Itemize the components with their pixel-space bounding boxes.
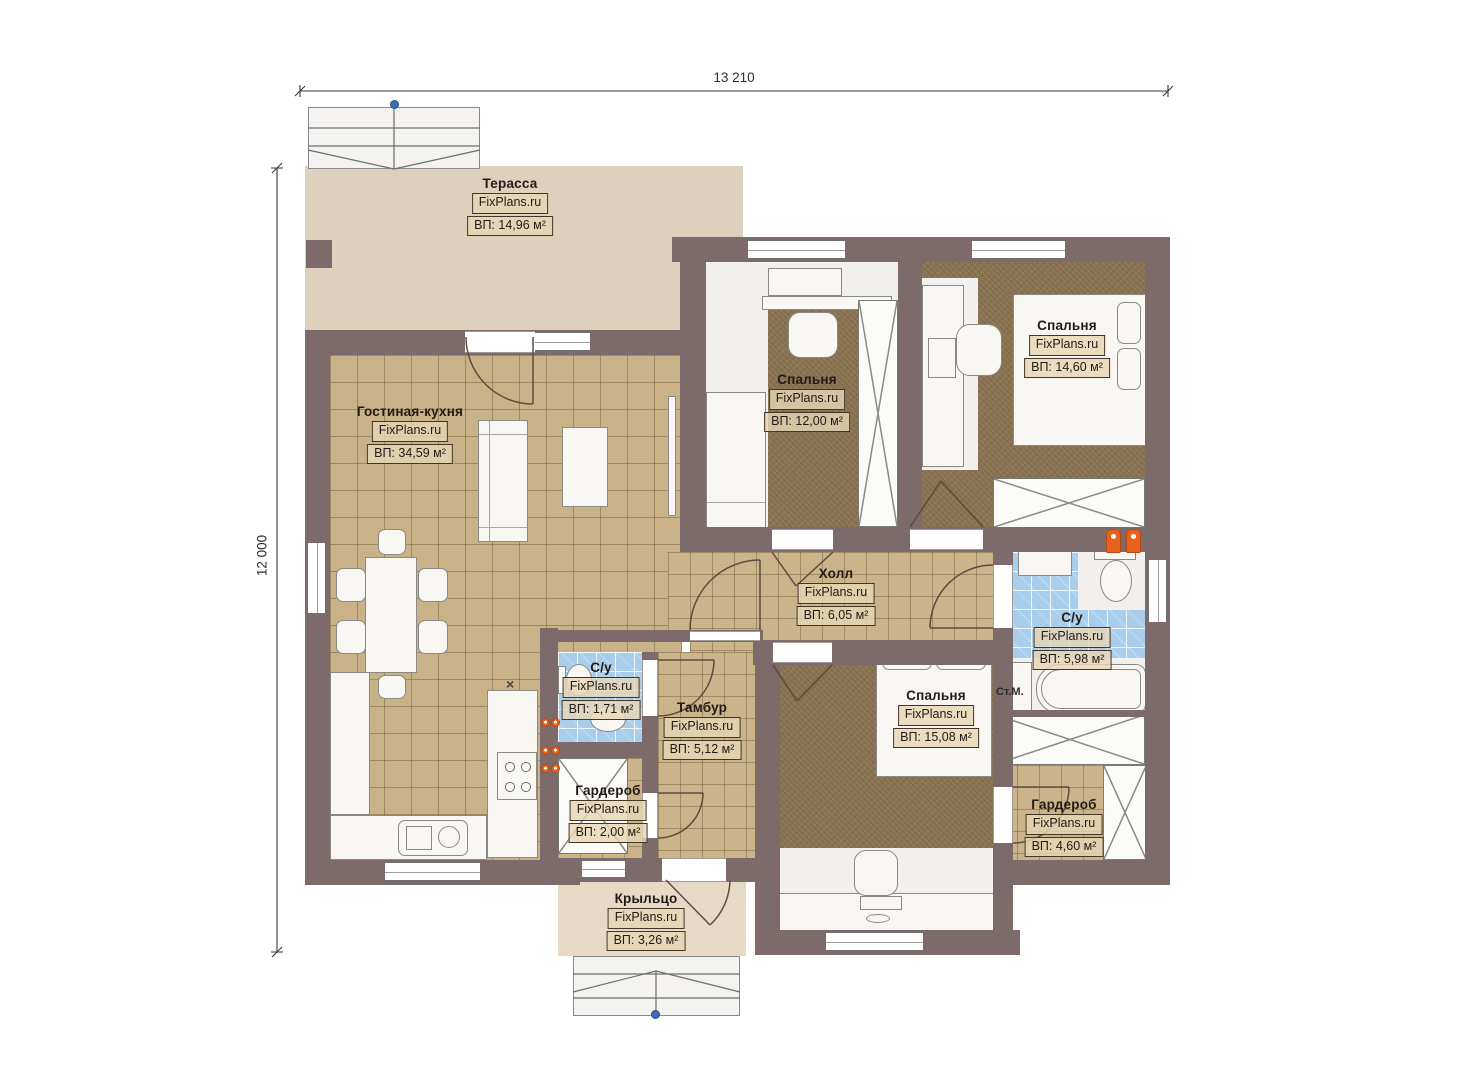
room-area: ВП: 5,12 м²	[663, 740, 742, 761]
room-label-bedroom3: Спальня FixPlans.ru ВП: 15,08 м²	[893, 688, 979, 748]
room-name: Спальня	[906, 688, 966, 703]
room-label-terrace: Терасса FixPlans.ru ВП: 14,96 м²	[467, 176, 553, 236]
room-label-wardrobe1: Гардероб FixPlans.ru ВП: 2,00 м²	[569, 783, 648, 843]
room-label-wardrobe2: Гардероб FixPlans.ru ВП: 4,60 м²	[1025, 797, 1104, 857]
room-area: ВП: 1,71 м²	[562, 700, 641, 721]
floor-plan-page: { "plan": { "brand": "FixPlans.ru", "dim…	[0, 0, 1474, 1080]
outlet-icon	[551, 746, 560, 755]
brand-watermark: FixPlans.ru	[798, 583, 875, 604]
vent-mark: ×	[506, 676, 514, 692]
room-name: Холл	[819, 566, 854, 581]
room-name: Гостиная-кухня	[357, 404, 463, 419]
brand-watermark: FixPlans.ru	[769, 389, 846, 410]
room-label-living: Гостиная-кухня FixPlans.ru ВП: 34,59 м²	[357, 404, 463, 464]
room-area: ВП: 4,60 м²	[1025, 837, 1104, 858]
brand-watermark: FixPlans.ru	[664, 717, 741, 738]
brand-watermark: FixPlans.ru	[1026, 814, 1103, 835]
room-name: Гардероб	[1031, 797, 1096, 812]
brand-watermark: FixPlans.ru	[1034, 627, 1111, 648]
room-name: С/у	[1061, 610, 1083, 625]
outlet-icon	[551, 718, 560, 727]
floor-plan-canvas: 13 210 12 000 Ст.М. × Терасса FixPlans.r…	[0, 0, 1474, 1080]
outlet-icon	[551, 764, 560, 773]
brand-watermark: FixPlans.ru	[472, 193, 549, 214]
room-label-bedroom2: Спальня FixPlans.ru ВП: 14,60 м²	[1024, 318, 1110, 378]
room-label-bathroom: С/у FixPlans.ru ВП: 5,98 м²	[1033, 610, 1112, 670]
room-area: ВП: 6,05 м²	[797, 606, 876, 627]
room-name: Терасса	[483, 176, 538, 191]
room-label-tambour: Тамбур FixPlans.ru ВП: 5,12 м²	[663, 700, 742, 760]
wall-lamp-icon	[1106, 529, 1121, 553]
room-name: Крыльцо	[615, 891, 678, 906]
room-name: Гардероб	[575, 783, 640, 798]
room-area: ВП: 3,26 м²	[607, 931, 686, 952]
brand-watermark: FixPlans.ru	[608, 908, 685, 929]
brand-watermark: FixPlans.ru	[1029, 335, 1106, 356]
room-label-bedroom1: Спальня FixPlans.ru ВП: 12,00 м²	[764, 372, 850, 432]
room-name: С/у	[590, 660, 612, 675]
wall-lamp-icon	[1126, 529, 1141, 553]
stairs-start-marker	[651, 1010, 660, 1019]
outlet-icon	[541, 764, 550, 773]
room-area: ВП: 14,60 м²	[1024, 358, 1110, 379]
dimension-width-label: 13 210	[694, 70, 774, 85]
plan-linework	[0, 0, 1474, 1080]
dimension-height-label: 12 000	[255, 526, 270, 586]
washing-machine-label: Ст.М.	[996, 686, 1024, 698]
brand-watermark: FixPlans.ru	[570, 800, 647, 821]
room-name: Спальня	[777, 372, 837, 387]
room-label-hall: Холл FixPlans.ru ВП: 6,05 м²	[797, 566, 876, 626]
room-area: ВП: 14,96 м²	[467, 216, 553, 237]
room-area: ВП: 34,59 м²	[367, 444, 453, 465]
stair-symbols	[308, 107, 740, 1015]
room-area: ВП: 15,08 м²	[893, 728, 979, 749]
room-label-porch: Крыльцо FixPlans.ru ВП: 3,26 м²	[607, 891, 686, 951]
room-area: ВП: 2,00 м²	[569, 823, 648, 844]
brand-watermark: FixPlans.ru	[563, 677, 640, 698]
room-area: ВП: 12,00 м²	[764, 412, 850, 433]
room-name: Тамбур	[677, 700, 727, 715]
brand-watermark: FixPlans.ru	[372, 421, 449, 442]
stairs-start-marker	[390, 100, 399, 109]
brand-watermark: FixPlans.ru	[898, 705, 975, 726]
room-name: Спальня	[1037, 318, 1097, 333]
outlet-icon	[541, 746, 550, 755]
room-area: ВП: 5,98 м²	[1033, 650, 1112, 671]
outlet-icon	[541, 718, 550, 727]
room-label-wc: С/у FixPlans.ru ВП: 1,71 м²	[562, 660, 641, 720]
